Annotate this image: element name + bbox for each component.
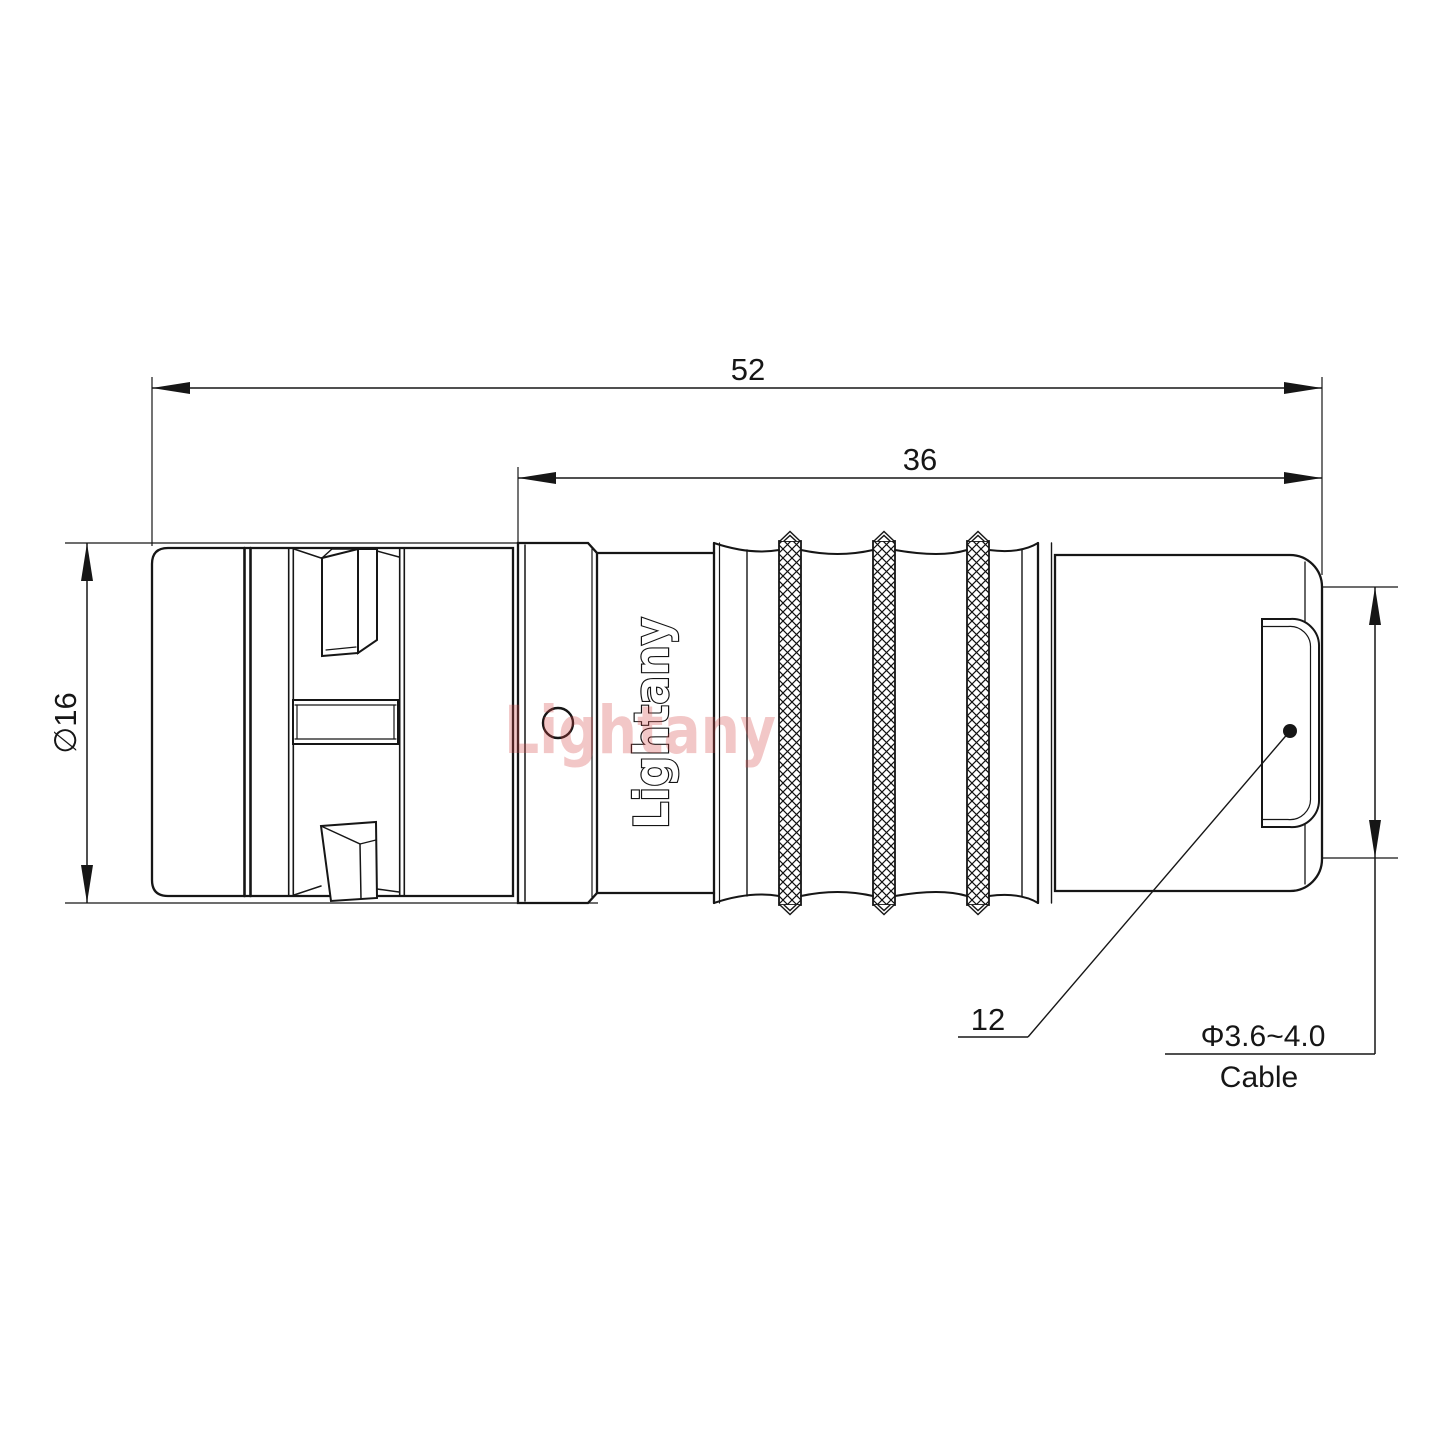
knurl-band-2 (873, 532, 895, 915)
bottom-key-block (321, 822, 377, 901)
dim-label-diameter: ∅16 (48, 692, 83, 754)
watermark-text: Lightany (504, 692, 776, 769)
drawing-svg: 52 36 ∅16 Φ3.6~4.0 Cable 12 Lightany Lig… (0, 0, 1440, 1440)
rear-body (1055, 555, 1322, 891)
front-shell (152, 548, 513, 901)
connector-technical-drawing: 52 36 ∅16 Φ3.6~4.0 Cable 12 Lightany Lig… (0, 0, 1440, 1440)
dim-rear-length: 36 (518, 442, 1322, 546)
dim-label-36: 36 (903, 442, 937, 477)
cable-boss (1262, 619, 1319, 827)
knurl-band-3 (967, 532, 989, 915)
size-12-label: 12 (971, 1002, 1005, 1037)
cable-range-label: Φ3.6~4.0 (1201, 1020, 1326, 1053)
dim-label-52: 52 (731, 352, 765, 387)
dim-overall-length: 52 (152, 352, 1322, 575)
key-bridge (293, 700, 398, 744)
top-key-block (322, 549, 377, 656)
knurl-band-1 (779, 532, 801, 915)
cable-word-label: Cable (1220, 1061, 1298, 1094)
